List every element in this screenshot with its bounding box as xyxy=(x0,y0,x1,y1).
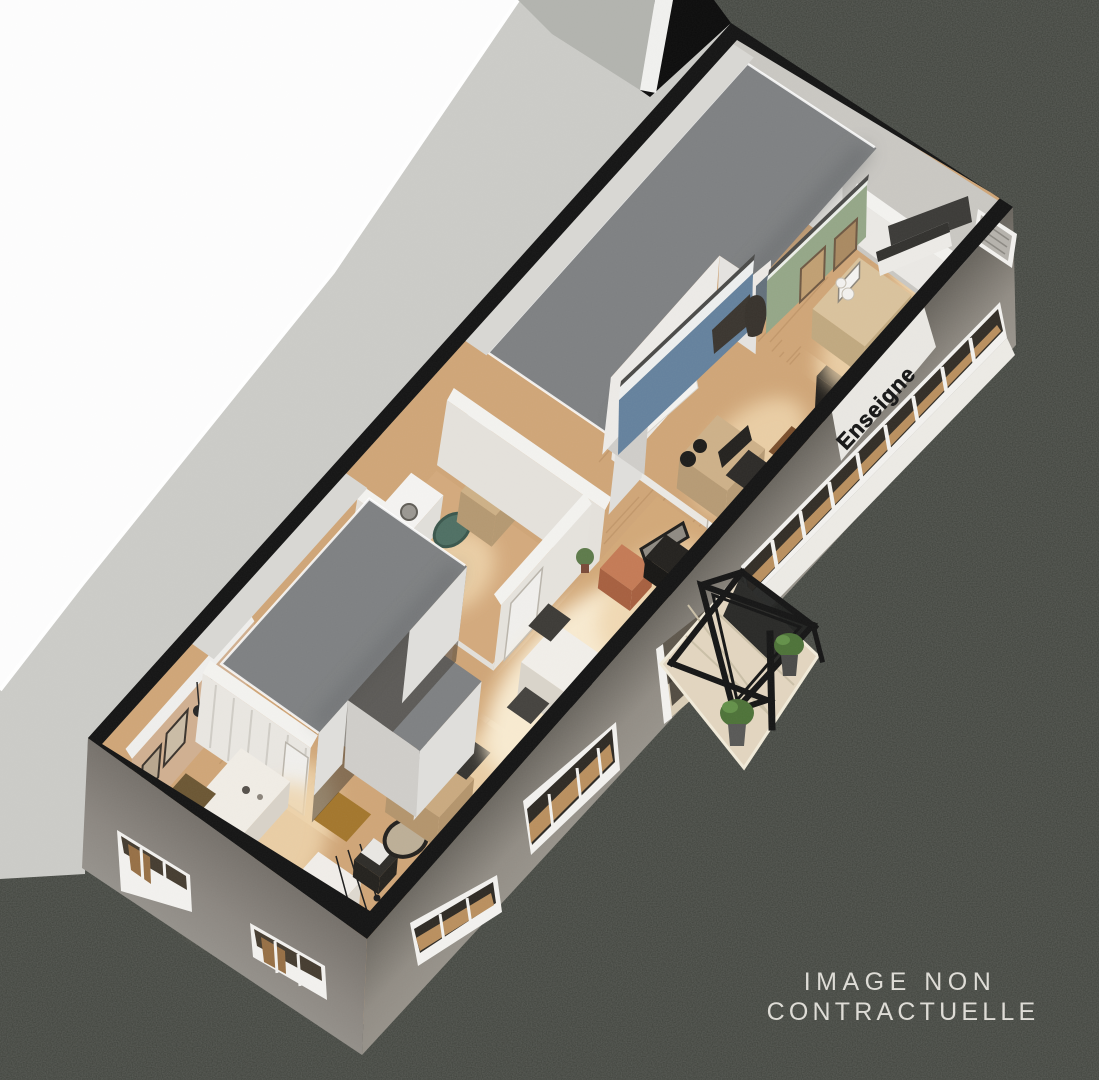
svg-text:CONTRACTUELLE: CONTRACTUELLE xyxy=(767,998,1040,1026)
svg-text:IMAGE NON: IMAGE NON xyxy=(804,968,997,996)
